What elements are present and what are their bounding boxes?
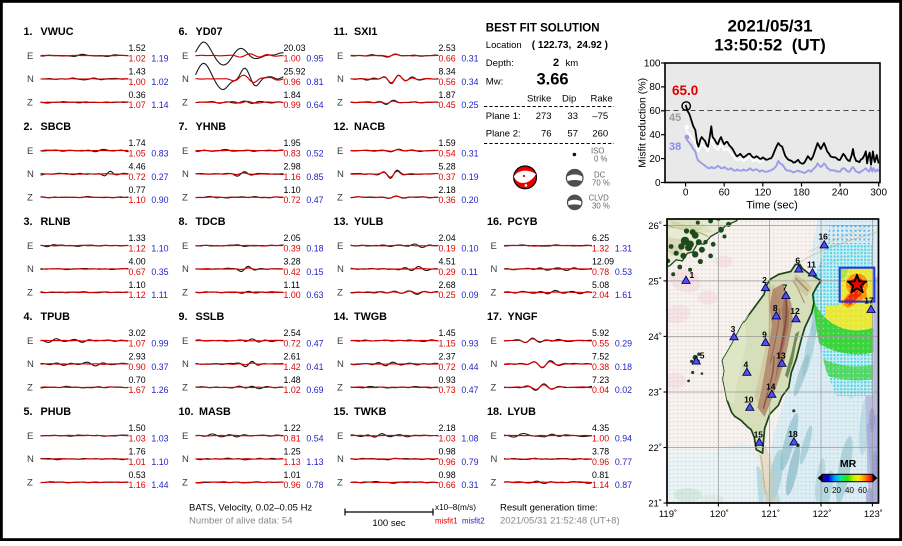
- svg-text:E: E: [337, 336, 343, 347]
- svg-text:120: 120: [754, 188, 771, 199]
- svg-text:Rake: Rake: [591, 94, 613, 105]
- svg-text:0.39: 0.39: [284, 244, 301, 254]
- svg-text:0.79: 0.79: [461, 457, 478, 467]
- svg-text:60: 60: [719, 188, 731, 199]
- svg-text:E: E: [27, 336, 33, 347]
- svg-text:Mw:: Mw:: [486, 77, 503, 88]
- svg-text:1.03: 1.03: [129, 434, 146, 444]
- svg-text:0.31: 0.31: [461, 149, 478, 159]
- svg-text:Z: Z: [27, 288, 33, 299]
- svg-text:1.10: 1.10: [151, 457, 168, 467]
- svg-text:0.47: 0.47: [306, 339, 323, 349]
- svg-text:1.00: 1.00: [592, 434, 609, 444]
- svg-text:2.98: 2.98: [284, 162, 301, 172]
- svg-text:1.45: 1.45: [439, 328, 456, 338]
- svg-text:0.15: 0.15: [306, 267, 323, 277]
- svg-text:0.19: 0.19: [461, 172, 478, 182]
- svg-text:120˚: 120˚: [710, 509, 729, 520]
- svg-text:N: N: [27, 264, 34, 275]
- svg-text:0.64: 0.64: [306, 100, 323, 110]
- svg-text:1.12: 1.12: [129, 244, 146, 254]
- svg-text:1.84: 1.84: [284, 90, 301, 100]
- svg-text:N: N: [182, 74, 189, 85]
- svg-text:9: 9: [762, 330, 767, 340]
- svg-text:2.04: 2.04: [592, 290, 609, 300]
- svg-text:TPUB: TPUB: [41, 311, 71, 323]
- svg-text:1.14: 1.14: [151, 100, 168, 110]
- svg-text:3.28: 3.28: [284, 257, 301, 267]
- svg-text:300: 300: [870, 188, 887, 199]
- svg-text:0.66: 0.66: [439, 54, 456, 64]
- svg-text:N: N: [491, 359, 498, 370]
- svg-text:TDCB: TDCB: [196, 216, 226, 228]
- svg-text:65.0: 65.0: [672, 83, 698, 98]
- svg-text:12.09: 12.09: [592, 257, 614, 267]
- svg-text:MR: MR: [840, 458, 857, 470]
- svg-text:PCYB: PCYB: [508, 216, 538, 228]
- svg-text:SBCB: SBCB: [41, 121, 72, 133]
- svg-text:N: N: [27, 169, 34, 180]
- svg-text:1.00: 1.00: [284, 54, 301, 64]
- svg-text:Z: Z: [337, 193, 343, 204]
- svg-text:12.: 12.: [334, 121, 349, 133]
- svg-text:16: 16: [818, 232, 828, 242]
- svg-text:0.53: 0.53: [129, 470, 146, 480]
- svg-text:6.25: 6.25: [592, 233, 609, 243]
- svg-text:0.31: 0.31: [461, 54, 478, 64]
- svg-text:0.96: 0.96: [284, 480, 301, 490]
- svg-text:100 sec: 100 sec: [372, 518, 406, 529]
- svg-text:6.: 6.: [179, 26, 188, 38]
- svg-text:0.93: 0.93: [439, 375, 456, 385]
- svg-text:273: 273: [536, 111, 552, 122]
- svg-text:1.32: 1.32: [592, 244, 609, 254]
- svg-text:Z: Z: [182, 193, 188, 204]
- svg-text:0.78: 0.78: [306, 480, 323, 490]
- svg-text:YULB: YULB: [354, 216, 384, 228]
- svg-text:0.37: 0.37: [439, 172, 456, 182]
- svg-text:60: 60: [858, 486, 867, 495]
- svg-text:1.16: 1.16: [129, 480, 146, 490]
- svg-text:1.10: 1.10: [151, 244, 168, 254]
- svg-text:Misfit reduction (%): Misfit reduction (%): [637, 78, 649, 168]
- svg-text:0.95: 0.95: [306, 54, 323, 64]
- svg-text:0.36: 0.36: [439, 195, 456, 205]
- svg-text:4.51: 4.51: [439, 257, 456, 267]
- svg-text:Z: Z: [337, 383, 343, 394]
- svg-text:1.76: 1.76: [129, 447, 146, 457]
- svg-text:10.: 10.: [179, 406, 194, 418]
- svg-text:TWGB: TWGB: [354, 311, 387, 323]
- svg-text:0.72: 0.72: [439, 362, 456, 372]
- svg-text:0.99: 0.99: [151, 339, 168, 349]
- svg-text:80: 80: [649, 82, 661, 93]
- svg-text:0.96: 0.96: [439, 457, 456, 467]
- svg-text:23˚: 23˚: [648, 388, 662, 399]
- svg-text:7.23: 7.23: [592, 375, 609, 385]
- svg-text:E: E: [27, 51, 33, 62]
- svg-text:N: N: [491, 454, 498, 465]
- svg-text:1.50: 1.50: [129, 423, 146, 433]
- svg-text:1.00: 1.00: [129, 77, 146, 87]
- svg-text:240: 240: [832, 188, 849, 199]
- svg-text:45: 45: [669, 112, 681, 124]
- svg-text:0.98: 0.98: [439, 470, 456, 480]
- svg-text:30 %: 30 %: [592, 202, 610, 211]
- svg-text:5.28: 5.28: [439, 162, 456, 172]
- svg-text:121˚: 121˚: [761, 509, 780, 520]
- svg-text:20: 20: [649, 154, 661, 165]
- svg-text:5: 5: [700, 351, 705, 361]
- svg-text:0.72: 0.72: [129, 172, 146, 182]
- svg-text:0.83: 0.83: [284, 149, 301, 159]
- svg-text:0.18: 0.18: [306, 244, 323, 254]
- svg-text:Time (sec): Time (sec): [746, 200, 798, 212]
- svg-text:1.95: 1.95: [284, 138, 301, 148]
- svg-text:1: 1: [690, 270, 695, 280]
- svg-text:8.: 8.: [179, 216, 188, 228]
- svg-text:17.: 17.: [487, 311, 502, 323]
- svg-text:0.36: 0.36: [129, 90, 146, 100]
- svg-text:20: 20: [832, 486, 841, 495]
- svg-text:0.72: 0.72: [284, 339, 301, 349]
- svg-text:E: E: [27, 146, 33, 157]
- svg-text:Z: Z: [27, 98, 33, 109]
- svg-text:1.25: 1.25: [284, 447, 301, 457]
- svg-text:7.: 7.: [179, 121, 188, 133]
- svg-text:260: 260: [592, 129, 608, 140]
- svg-text:2: 2: [762, 275, 767, 285]
- svg-text:1.44: 1.44: [151, 480, 168, 490]
- svg-text:Plane 1:: Plane 1:: [486, 111, 521, 122]
- svg-text:Z: Z: [27, 478, 33, 489]
- svg-text:13.: 13.: [334, 216, 349, 228]
- svg-text:40: 40: [649, 130, 661, 141]
- svg-text:4.46: 4.46: [129, 162, 146, 172]
- svg-text:Result generation time:: Result generation time:: [500, 503, 598, 514]
- svg-text:1.08: 1.08: [461, 434, 478, 444]
- svg-text:2.18: 2.18: [439, 185, 456, 195]
- svg-text:Z: Z: [182, 288, 188, 299]
- svg-text:0.47: 0.47: [306, 195, 323, 205]
- svg-text:2.61: 2.61: [284, 352, 301, 362]
- svg-text:2.53: 2.53: [439, 43, 456, 53]
- svg-text:1.07: 1.07: [129, 339, 146, 349]
- svg-text:15.: 15.: [334, 406, 349, 418]
- svg-text:E: E: [182, 431, 188, 442]
- svg-text:0: 0: [683, 188, 689, 199]
- svg-text:Z: Z: [491, 288, 497, 299]
- svg-text:1.22: 1.22: [284, 423, 301, 433]
- svg-text:17: 17: [864, 296, 874, 306]
- svg-text:1.07: 1.07: [129, 100, 146, 110]
- svg-text:119˚: 119˚: [659, 509, 677, 520]
- svg-text:1.33: 1.33: [129, 233, 146, 243]
- svg-text:Z: Z: [337, 98, 343, 109]
- svg-text:E: E: [337, 51, 343, 62]
- svg-text:2: 2: [553, 57, 559, 69]
- svg-text:0.67: 0.67: [129, 267, 146, 277]
- svg-text:0.85: 0.85: [306, 172, 323, 182]
- svg-text:3.78: 3.78: [592, 447, 609, 457]
- svg-text:2.93: 2.93: [129, 352, 146, 362]
- svg-text:8: 8: [773, 303, 778, 313]
- svg-text:1.19: 1.19: [151, 54, 168, 64]
- svg-text:0.02: 0.02: [615, 385, 632, 395]
- svg-text:1.05: 1.05: [129, 149, 146, 159]
- svg-text:0.09: 0.09: [461, 290, 478, 300]
- svg-text:0.81: 0.81: [592, 470, 609, 480]
- svg-text:6: 6: [795, 256, 800, 266]
- svg-text:14: 14: [766, 381, 776, 391]
- svg-text:Number of alive data: 54: Number of alive data: 54: [189, 516, 293, 527]
- svg-text:0.78: 0.78: [592, 267, 609, 277]
- svg-text:( 122.73, 24.92 ): ( 122.73, 24.92 ): [532, 40, 608, 51]
- svg-text:Z: Z: [182, 98, 188, 109]
- svg-text:2.37: 2.37: [439, 352, 456, 362]
- svg-text:1.13: 1.13: [306, 457, 323, 467]
- svg-text:0.96: 0.96: [284, 77, 301, 87]
- svg-text:18.: 18.: [487, 406, 502, 418]
- svg-text:21˚: 21˚: [648, 499, 662, 510]
- svg-text:0: 0: [824, 486, 829, 495]
- svg-text:76: 76: [541, 129, 552, 140]
- svg-text:1.67: 1.67: [129, 385, 146, 395]
- svg-text:Z: Z: [337, 478, 343, 489]
- svg-text:123˚: 123˚: [864, 509, 883, 520]
- svg-text:Z: Z: [337, 288, 343, 299]
- svg-text:0.94: 0.94: [615, 434, 632, 444]
- svg-text:5.: 5.: [24, 406, 33, 418]
- svg-text:N: N: [27, 454, 34, 465]
- svg-text:25.92: 25.92: [284, 67, 306, 77]
- svg-text:1.31: 1.31: [615, 244, 632, 254]
- svg-text:0.11: 0.11: [461, 267, 478, 277]
- svg-text:0.90: 0.90: [129, 362, 146, 372]
- svg-text:N: N: [27, 359, 34, 370]
- svg-text:N: N: [182, 359, 189, 370]
- svg-text:70 %: 70 %: [592, 179, 610, 188]
- svg-text:misfit1: misfit1: [435, 517, 458, 526]
- svg-text:N: N: [337, 264, 344, 275]
- svg-text:100: 100: [644, 58, 661, 69]
- svg-text:25˚: 25˚: [648, 276, 662, 287]
- svg-text:1.02: 1.02: [129, 54, 146, 64]
- svg-text:N: N: [182, 454, 189, 465]
- svg-text:0.73: 0.73: [439, 385, 456, 395]
- svg-text:N: N: [491, 264, 498, 275]
- svg-text:0.44: 0.44: [461, 362, 478, 372]
- svg-text:N: N: [27, 74, 34, 85]
- svg-text:2.: 2.: [24, 121, 33, 133]
- svg-text:N: N: [182, 169, 189, 180]
- svg-text:0.20: 0.20: [461, 195, 478, 205]
- svg-text:0.53: 0.53: [615, 267, 632, 277]
- svg-text:Plane 2:: Plane 2:: [486, 129, 521, 140]
- svg-text:0.25: 0.25: [439, 290, 456, 300]
- svg-text:1.01: 1.01: [129, 457, 146, 467]
- svg-text:2.04: 2.04: [439, 233, 456, 243]
- svg-text:Location: Location: [486, 40, 522, 51]
- svg-text:40: 40: [845, 486, 854, 495]
- svg-text:x10–8(m/s): x10–8(m/s): [435, 503, 476, 512]
- svg-text:13:50:52 (UT): 13:50:52 (UT): [714, 36, 825, 55]
- svg-text:0.35: 0.35: [151, 267, 168, 277]
- svg-text:38: 38: [669, 141, 681, 153]
- svg-text:1.11: 1.11: [151, 290, 168, 300]
- svg-text:1.59: 1.59: [439, 138, 456, 148]
- svg-text:0.10: 0.10: [461, 244, 478, 254]
- svg-text:1.26: 1.26: [151, 385, 168, 395]
- svg-text:4.: 4.: [24, 311, 33, 323]
- svg-text:1.03: 1.03: [439, 434, 456, 444]
- svg-text:E: E: [337, 146, 343, 157]
- svg-text:2.05: 2.05: [284, 233, 301, 243]
- svg-text:9.: 9.: [179, 311, 188, 323]
- svg-text:10: 10: [744, 394, 754, 404]
- svg-text:2021/05/31: 2021/05/31: [727, 17, 812, 36]
- svg-text:2.54: 2.54: [284, 328, 301, 338]
- svg-text:Z: Z: [27, 383, 33, 394]
- svg-text:0.42: 0.42: [284, 267, 301, 277]
- svg-text:Depth:: Depth:: [486, 58, 514, 69]
- svg-text:E: E: [337, 431, 343, 442]
- svg-text:4.35: 4.35: [592, 423, 609, 433]
- svg-text:1.61: 1.61: [615, 290, 632, 300]
- svg-text:12: 12: [790, 306, 800, 316]
- svg-text:2021/05/31 21:52:48 (UT+8): 2021/05/31 21:52:48 (UT+8): [500, 516, 620, 527]
- svg-text:misfit2: misfit2: [462, 517, 485, 526]
- svg-text:MASB: MASB: [199, 406, 231, 418]
- svg-text:E: E: [182, 241, 188, 252]
- svg-text:Z: Z: [27, 193, 33, 204]
- svg-text:0.38: 0.38: [592, 362, 609, 372]
- svg-text:–75: –75: [592, 111, 608, 122]
- svg-text:33: 33: [567, 111, 578, 122]
- svg-text:0.31: 0.31: [461, 480, 478, 490]
- svg-text:1.87: 1.87: [439, 90, 456, 100]
- svg-text:1.01: 1.01: [284, 470, 301, 480]
- svg-text:1.00: 1.00: [284, 290, 301, 300]
- svg-text:1.13: 1.13: [284, 457, 301, 467]
- svg-text:0.29: 0.29: [439, 267, 456, 277]
- svg-text:122˚: 122˚: [812, 509, 831, 520]
- svg-text:4.00: 4.00: [129, 257, 146, 267]
- svg-text:180: 180: [793, 188, 810, 199]
- svg-text:26˚: 26˚: [648, 221, 662, 232]
- svg-text:5.92: 5.92: [592, 328, 609, 338]
- svg-text:0: 0: [655, 178, 661, 189]
- svg-text:0.19: 0.19: [439, 244, 456, 254]
- svg-text:N: N: [337, 74, 344, 85]
- svg-text:N: N: [337, 454, 344, 465]
- svg-text:0.72: 0.72: [284, 195, 301, 205]
- svg-text:RLNB: RLNB: [41, 216, 71, 228]
- svg-text:1.: 1.: [24, 26, 33, 38]
- svg-text:3.: 3.: [24, 216, 33, 228]
- svg-text:0.81: 0.81: [306, 77, 323, 87]
- svg-text:1.52: 1.52: [129, 43, 146, 53]
- svg-text:0.93: 0.93: [461, 339, 478, 349]
- svg-text:11: 11: [807, 260, 816, 270]
- svg-text:0.77: 0.77: [615, 457, 632, 467]
- svg-text:1.14: 1.14: [592, 480, 609, 490]
- svg-text:0.77: 0.77: [129, 185, 146, 195]
- svg-text:N: N: [182, 264, 189, 275]
- svg-text:0.56: 0.56: [439, 77, 456, 87]
- svg-text:16.: 16.: [487, 216, 502, 228]
- svg-text:0.70: 0.70: [129, 375, 146, 385]
- svg-text:22˚: 22˚: [648, 443, 662, 454]
- svg-text:1.10: 1.10: [129, 280, 146, 290]
- svg-text:1.42: 1.42: [284, 362, 301, 372]
- svg-text:8.34: 8.34: [439, 67, 456, 77]
- svg-text:0.34: 0.34: [461, 77, 478, 87]
- svg-text:0.25: 0.25: [461, 100, 478, 110]
- svg-text:0.63: 0.63: [306, 290, 323, 300]
- svg-text:0.37: 0.37: [151, 362, 168, 372]
- svg-text:YD07: YD07: [196, 26, 223, 38]
- svg-text:1.48: 1.48: [284, 375, 301, 385]
- svg-text:0.81: 0.81: [284, 434, 301, 444]
- svg-text:N: N: [337, 169, 344, 180]
- svg-text:0.98: 0.98: [439, 447, 456, 457]
- svg-text:0.66: 0.66: [439, 480, 456, 490]
- svg-text:E: E: [182, 146, 188, 157]
- svg-text:LYUB: LYUB: [508, 406, 537, 418]
- svg-text:0.52: 0.52: [306, 149, 323, 159]
- svg-text:0.54: 0.54: [306, 434, 323, 444]
- svg-text:1.10: 1.10: [129, 195, 146, 205]
- svg-text:SSLB: SSLB: [196, 311, 225, 323]
- svg-text:Z: Z: [182, 383, 188, 394]
- svg-text:E: E: [337, 241, 343, 252]
- svg-text:0.90: 0.90: [151, 195, 168, 205]
- svg-text:3.02: 3.02: [129, 328, 146, 338]
- svg-text:15: 15: [754, 429, 764, 439]
- svg-text:5.08: 5.08: [592, 280, 609, 290]
- svg-text:Z: Z: [182, 478, 188, 489]
- svg-text:0.27: 0.27: [151, 172, 168, 182]
- svg-text:E: E: [27, 241, 33, 252]
- svg-text:Strike: Strike: [527, 94, 551, 105]
- svg-text:NACB: NACB: [354, 121, 385, 133]
- svg-text:E: E: [182, 51, 188, 62]
- svg-text:60: 60: [649, 106, 661, 117]
- svg-text:0.55: 0.55: [592, 339, 609, 349]
- svg-text:km: km: [566, 58, 579, 69]
- svg-text:E: E: [27, 431, 33, 442]
- svg-text:1.02: 1.02: [151, 77, 168, 87]
- svg-text:0 %: 0 %: [594, 155, 608, 164]
- svg-text:BEST FIT SOLUTION: BEST FIT SOLUTION: [486, 22, 600, 34]
- svg-text:Z: Z: [491, 383, 497, 394]
- svg-text:2.68: 2.68: [439, 280, 456, 290]
- svg-text:YHNB: YHNB: [196, 121, 227, 133]
- svg-text:2.18: 2.18: [439, 423, 456, 433]
- svg-text:3.66: 3.66: [537, 71, 569, 89]
- svg-text:0.45: 0.45: [439, 100, 456, 110]
- svg-text:YNGF: YNGF: [508, 311, 538, 323]
- svg-text:3: 3: [731, 324, 736, 334]
- svg-text:0.83: 0.83: [151, 149, 168, 159]
- svg-text:1.10: 1.10: [284, 185, 301, 195]
- svg-text:18: 18: [788, 429, 798, 439]
- svg-text:1.16: 1.16: [284, 172, 301, 182]
- svg-text:E: E: [182, 336, 188, 347]
- svg-text:E: E: [491, 336, 497, 347]
- svg-text:13: 13: [776, 350, 786, 360]
